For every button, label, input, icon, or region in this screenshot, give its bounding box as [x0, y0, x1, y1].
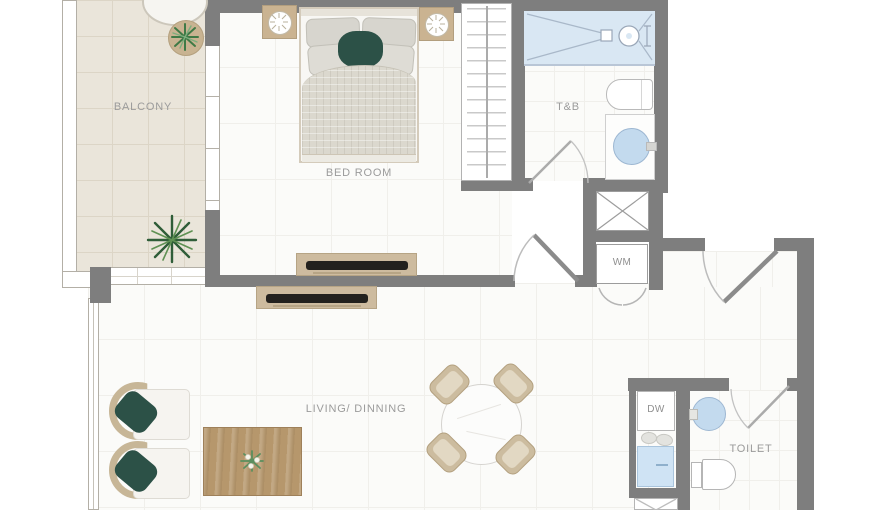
- tv-console-living: [256, 286, 377, 309]
- faucet-icon-kitchen: [656, 464, 668, 466]
- faucet-icon-toilet: [689, 409, 698, 420]
- floor-plan: BALCONY BED ROOM T&B WM DW: [0, 0, 880, 510]
- wall-kitchen-fridge-divider: [629, 488, 676, 498]
- kitchen-sink: [637, 446, 674, 487]
- toilet-tank: [691, 462, 702, 488]
- shaft-box: [596, 191, 649, 231]
- balcony-label: BALCONY: [103, 100, 183, 114]
- wall-kitchen-toilet-divider: [676, 390, 690, 510]
- wall-toilet-door-stub: [787, 378, 800, 391]
- faucet-icon-tb: [646, 142, 657, 151]
- plant-pot-icon: [168, 20, 204, 56]
- shower-tray: [524, 11, 655, 66]
- lamp-icon-right: [425, 13, 449, 37]
- lamp-icon-left: [268, 11, 292, 35]
- bedroom-door-arc: [514, 235, 534, 281]
- wardrobe: [461, 3, 512, 181]
- kitchen-counter-items: [641, 432, 657, 444]
- balcony-parapet-left: [62, 0, 77, 288]
- wall-wardrobe-bottom: [461, 180, 513, 191]
- tv-console-edge: [313, 272, 401, 274]
- wall-kitchen-left: [629, 390, 636, 498]
- entry-floor: [660, 251, 797, 287]
- coffee-table: [203, 427, 302, 496]
- sink-icon-tb: [613, 128, 650, 165]
- wall-service-right: [649, 185, 663, 290]
- toilet-fixture-tb: [606, 79, 653, 110]
- wall-wm-left: [583, 238, 596, 287]
- dishwasher-label: DW: [637, 403, 675, 417]
- wall-east: [797, 238, 814, 510]
- bathroom-label: T&B: [542, 100, 594, 114]
- washing-machine-label: WM: [596, 256, 648, 270]
- tv-icon: [266, 294, 368, 303]
- balcony-sliding-door: [103, 267, 206, 285]
- living-west-window: [88, 298, 99, 510]
- tv-console-edge: [273, 305, 361, 307]
- bed-accent-pillow: [338, 31, 383, 68]
- wall-entry-left: [663, 238, 705, 251]
- wardrobe-rail: [486, 6, 488, 178]
- bedroom-balcony-window: [205, 44, 220, 212]
- marble-vein: [457, 404, 501, 419]
- bed-headboard: [301, 9, 417, 16]
- living-label: LIVING/ DINNING: [294, 402, 418, 416]
- bedroom-door-leaf: [534, 235, 578, 281]
- bedroom-label: BED ROOM: [307, 166, 411, 180]
- wall-bathroom-bottom-left: [511, 178, 533, 191]
- wall-bathroom-right: [654, 0, 668, 193]
- toilet-bowl: [702, 459, 736, 490]
- marble-vein: [466, 431, 505, 440]
- wall-wardrobe-bathroom: [511, 0, 525, 191]
- bed-duvet: [302, 65, 416, 155]
- tv-icon: [306, 261, 408, 270]
- fridge-box: [634, 498, 678, 510]
- tv-console-bedroom: [296, 253, 417, 276]
- wall-living-west-stub: [90, 267, 111, 303]
- toilet-label: TOILET: [720, 442, 782, 456]
- bed: [299, 7, 419, 163]
- bed-foot: [302, 154, 416, 162]
